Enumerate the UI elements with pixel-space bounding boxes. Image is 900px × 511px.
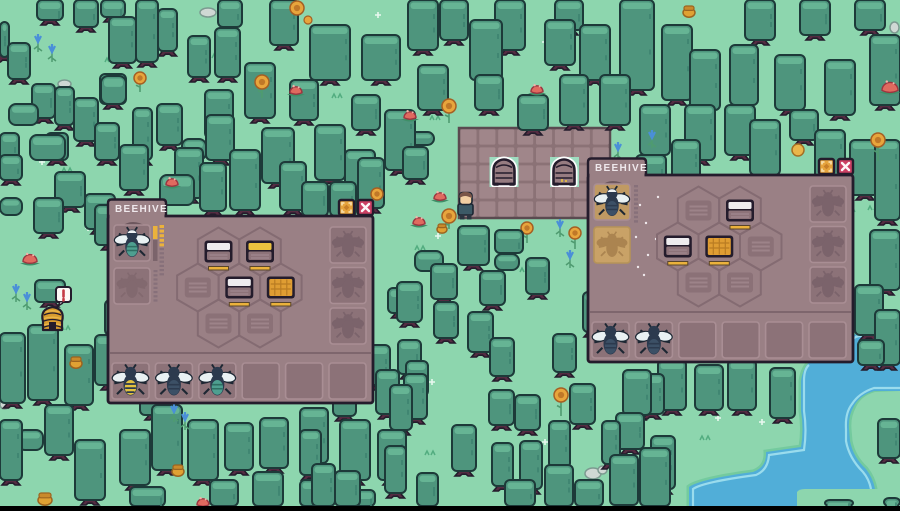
- svg-text:BEEHIVE: BEEHIVE: [595, 163, 648, 174]
- svg-text:BEEHIVE: BEEHIVE: [115, 204, 168, 215]
